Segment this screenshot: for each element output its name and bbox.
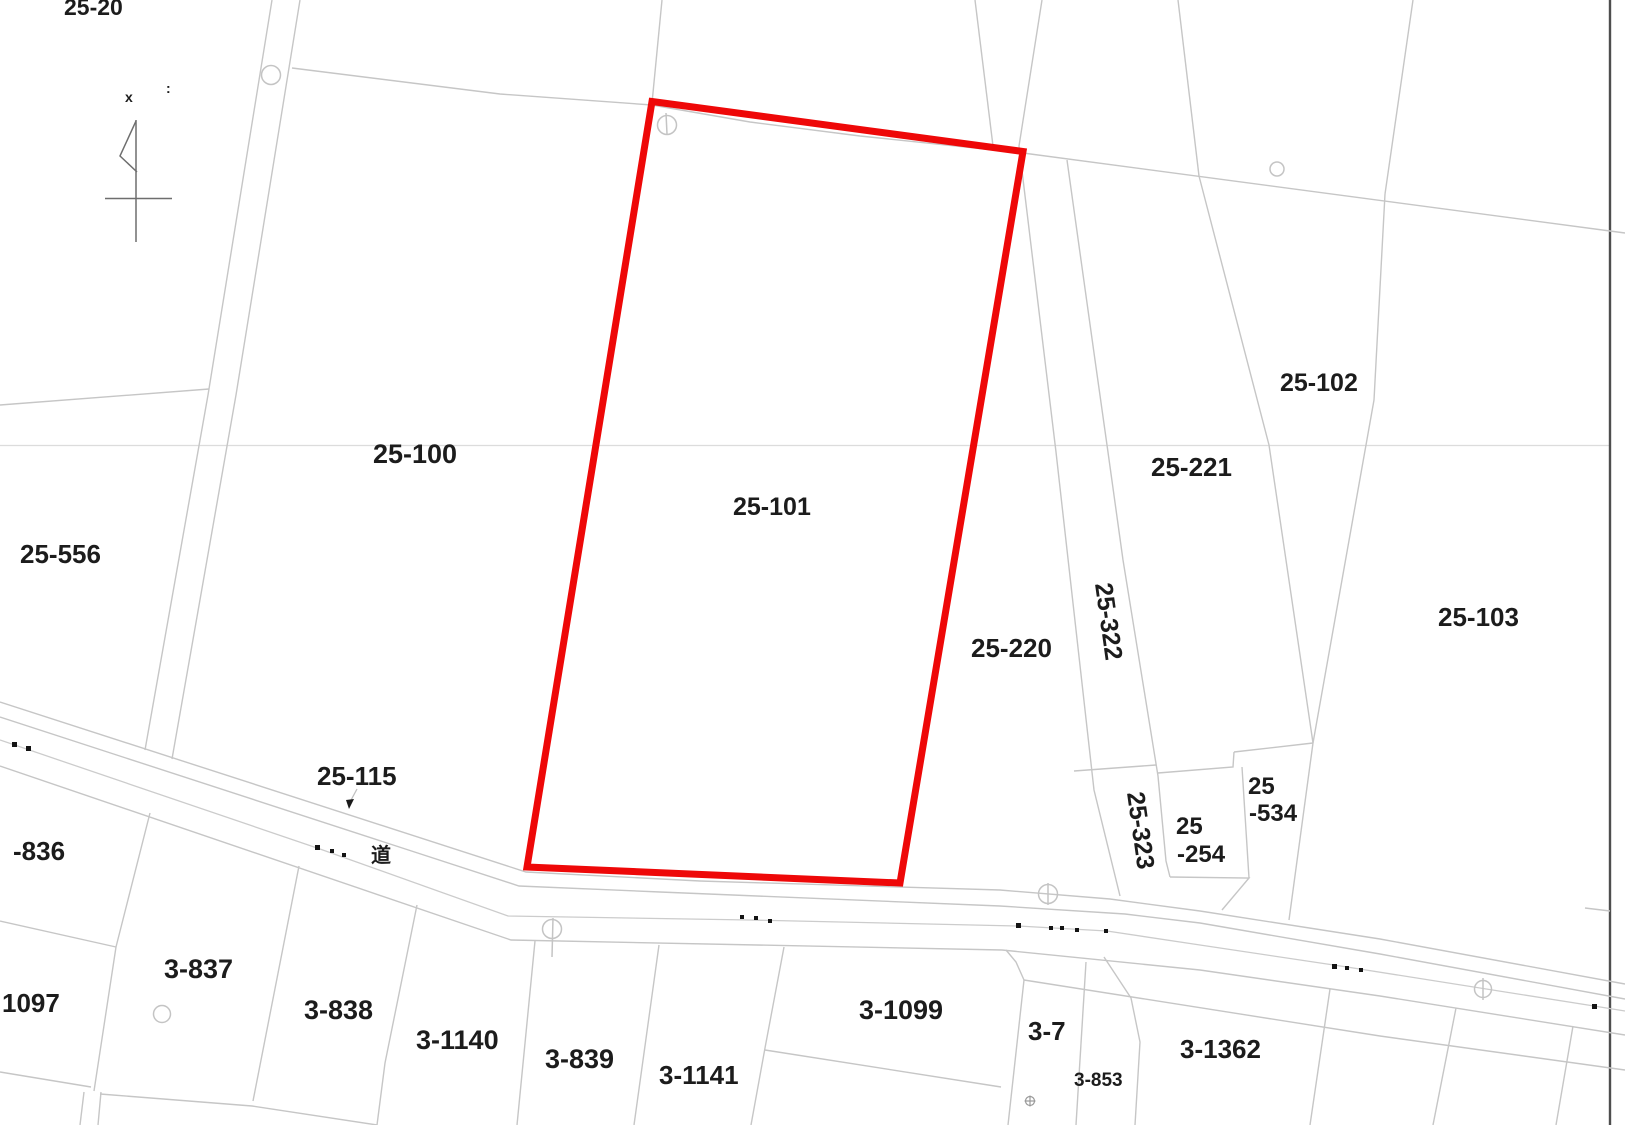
svg-text:-534: -534: [1249, 800, 1298, 827]
svg-text:25-103: 25-103: [1438, 602, 1519, 632]
svg-text::: :: [166, 80, 171, 96]
svg-text:-254: -254: [1177, 841, 1226, 868]
svg-text:25-220: 25-220: [971, 633, 1052, 663]
svg-text:25: 25: [1248, 773, 1275, 800]
svg-text:25-101: 25-101: [733, 493, 811, 521]
svg-text:25-221: 25-221: [1151, 452, 1232, 482]
svg-text:3-1362: 3-1362: [1180, 1034, 1261, 1064]
svg-text:3-1141: 3-1141: [659, 1060, 739, 1090]
svg-text:25-115: 25-115: [317, 761, 397, 791]
svg-text:3-853: 3-853: [1074, 1070, 1123, 1091]
svg-text:25-100: 25-100: [373, 439, 457, 469]
svg-text:-836: -836: [13, 836, 65, 866]
svg-text:3-839: 3-839: [545, 1044, 614, 1074]
svg-text:25-102: 25-102: [1280, 369, 1358, 397]
svg-text:25-556: 25-556: [20, 539, 101, 569]
svg-text:3-1099: 3-1099: [859, 995, 943, 1025]
svg-text:3-838: 3-838: [304, 995, 373, 1025]
svg-text:x: x: [125, 89, 133, 105]
svg-text:1097: 1097: [2, 988, 60, 1018]
svg-text:3-7: 3-7: [1028, 1016, 1066, 1046]
svg-text:3-1140: 3-1140: [416, 1025, 499, 1055]
svg-text:25: 25: [1176, 813, 1203, 840]
svg-text:25-20: 25-20: [64, 0, 123, 20]
svg-text:3-837: 3-837: [164, 954, 233, 984]
svg-text:道: 道: [371, 843, 391, 867]
